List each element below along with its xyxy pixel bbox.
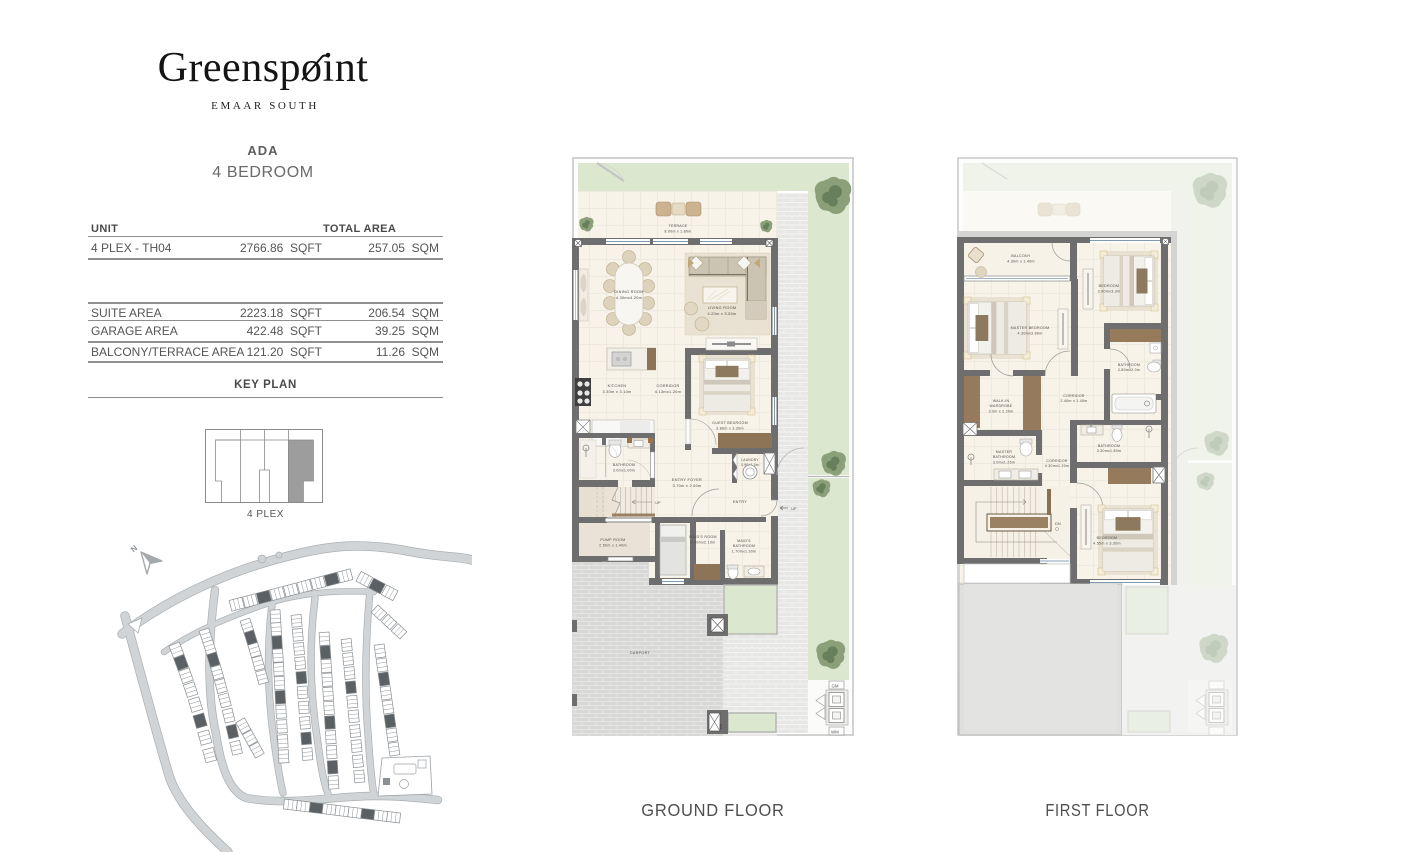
svg-text:EM: EM xyxy=(719,724,723,729)
svg-text:BATHROOM: BATHROOM xyxy=(1098,444,1120,448)
svg-text:BATHROOM: BATHROOM xyxy=(993,455,1015,459)
svg-text:2.50m x 1.40m: 2.50m x 1.40m xyxy=(599,543,627,547)
svg-text:3.0mx1.26m: 3.0mx1.26m xyxy=(993,460,1015,464)
svg-text:WARDROBE: WARDROBE xyxy=(990,404,1013,408)
svg-text:GM: GM xyxy=(832,684,839,689)
svg-text:2.80mx2.0m: 2.80mx2.0m xyxy=(1118,368,1140,372)
svg-text:2.40mx2.10m: 2.40mx2.10m xyxy=(690,540,715,544)
svg-text:TERRACE: TERRACE xyxy=(669,224,688,228)
svg-text:MAID'S: MAID'S xyxy=(737,539,751,543)
svg-text:CORRIDOR: CORRIDOR xyxy=(656,384,679,388)
svg-text:3.70m x 2.60m: 3.70m x 2.60m xyxy=(672,484,701,488)
svg-text:3.0m x 2.20m: 3.0m x 2.20m xyxy=(989,409,1014,413)
svg-text:CORRIDOR: CORRIDOR xyxy=(1063,394,1085,398)
svg-text:BATHROOM: BATHROOM xyxy=(1118,363,1140,367)
svg-text:MASTER BEDROOM: MASTER BEDROOM xyxy=(1011,326,1050,330)
svg-text:4.30mx1.20m: 4.30mx1.20m xyxy=(1045,464,1070,468)
svg-text:4.30mx4.20m: 4.30mx4.20m xyxy=(616,296,642,300)
svg-text:KITCHEN: KITCHEN xyxy=(608,384,627,388)
svg-text:WM: WM xyxy=(831,730,839,735)
svg-text:UP: UP xyxy=(791,507,797,511)
svg-text:WALK-IN: WALK-IN xyxy=(993,399,1010,403)
svg-text:UP: UP xyxy=(655,501,661,505)
svg-text:BEDROOM: BEDROOM xyxy=(1097,536,1118,540)
svg-text:4.55m x 3.30m: 4.55m x 3.30m xyxy=(1093,541,1121,545)
svg-text:4.20m x 3.50m: 4.20m x 3.50m xyxy=(707,312,736,316)
svg-text:3.0mx1.00m: 3.0mx1.00m xyxy=(613,468,635,472)
svg-text:N: N xyxy=(129,543,139,554)
svg-text:BEDROOM: BEDROOM xyxy=(1099,284,1120,288)
svg-text:MAID'S ROOM: MAID'S ROOM xyxy=(689,535,717,539)
svg-text:ENTRY: ENTRY xyxy=(733,500,747,504)
svg-text:LIVING ROOM: LIVING ROOM xyxy=(708,306,737,310)
svg-text:3.30mx1.80m: 3.30mx1.80m xyxy=(1097,449,1122,453)
svg-text:MASTER: MASTER xyxy=(996,450,1013,454)
svg-text:BATHROOM: BATHROOM xyxy=(733,544,755,548)
svg-text:GUEST BEDROOM: GUEST BEDROOM xyxy=(712,421,748,425)
svg-text:4.30m x 1.40m: 4.30m x 1.40m xyxy=(1007,259,1035,263)
svg-text:DN: DN xyxy=(1055,522,1061,526)
svg-text:8.00m x 1.80m: 8.00m x 1.80m xyxy=(664,229,691,233)
svg-text:4.30mx3.80m: 4.30mx3.80m xyxy=(1017,331,1042,335)
svg-text:ENTRY FOYER: ENTRY FOYER xyxy=(672,478,702,482)
svg-text:2.40m x 1.40m: 2.40m x 1.40m xyxy=(1060,399,1087,403)
svg-text:1.70mx1.30m: 1.70mx1.30m xyxy=(732,549,757,553)
svg-text:BALCONY: BALCONY xyxy=(1011,254,1031,258)
svg-text:3.80m x 3.30m: 3.80m x 3.30m xyxy=(716,426,744,430)
svg-text:BATHROOM: BATHROOM xyxy=(613,463,635,467)
svg-text:LAUNDRY: LAUNDRY xyxy=(741,458,759,462)
svg-text:CARPORT: CARPORT xyxy=(630,651,651,655)
svg-text:CORRIDOR: CORRIDOR xyxy=(1046,459,1068,463)
svg-text:4.13mx1.20m: 4.13mx1.20m xyxy=(655,390,681,394)
svg-text:3.90mx3.3m: 3.90mx3.3m xyxy=(1098,289,1121,293)
svg-text:DINING ROOM: DINING ROOM xyxy=(614,290,643,294)
svg-text:PUMP ROOM: PUMP ROOM xyxy=(600,538,625,542)
svg-text:3.30m x 3.10m: 3.30m x 3.10m xyxy=(602,390,631,394)
